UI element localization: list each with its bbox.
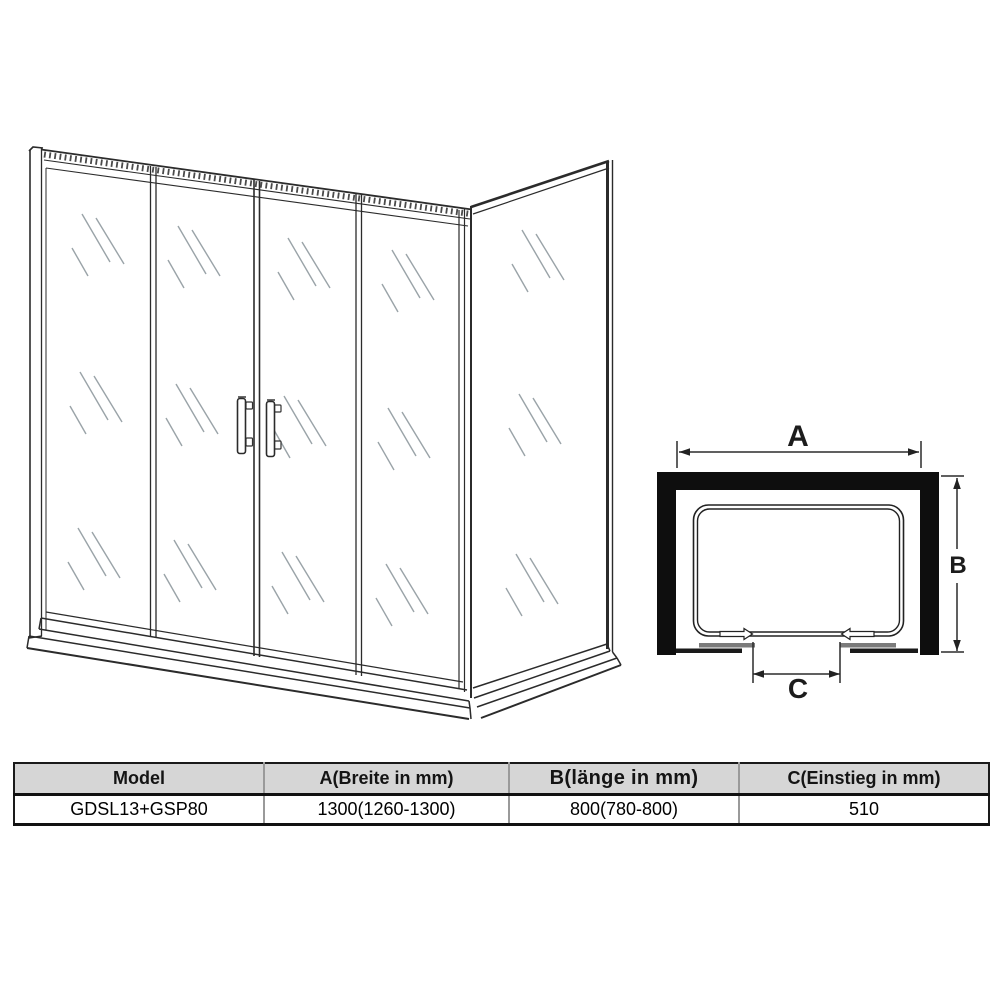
dimension-c: C	[753, 642, 840, 704]
enclosure-perspective-drawing	[27, 147, 621, 719]
spec-table-header-row: Model A(Breite in mm) B(länge in mm) C(E…	[14, 763, 989, 795]
dimension-b: B	[941, 476, 967, 652]
dimension-b-label: B	[949, 552, 966, 579]
shower-enclosure-drawings: A B C	[0, 0, 1001, 760]
col-header-width: A(Breite in mm)	[264, 763, 509, 795]
cell-length: 800(780-800)	[509, 795, 739, 825]
bottom-rail-and-tray	[27, 612, 471, 719]
glass-panel-dividers	[151, 166, 362, 676]
cell-width: 1300(1260-1300)	[264, 795, 509, 825]
door-handle-left	[238, 397, 253, 454]
sliding-direction-arrows	[720, 629, 874, 640]
spec-table-data-row: GDSL13+GSP80 1300(1260-1300) 800(780-800…	[14, 795, 989, 825]
topview-tray-outline	[694, 505, 904, 636]
dimension-a: A	[677, 420, 921, 468]
wall-profile	[29, 147, 43, 638]
col-header-length: B(länge in mm)	[509, 763, 739, 795]
door-track-bars	[676, 643, 918, 653]
glass-reflection-marks	[68, 214, 564, 626]
col-header-model: Model	[14, 763, 264, 795]
dimension-a-label: A	[787, 420, 809, 453]
spec-table: Model A(Breite in mm) B(länge in mm) C(E…	[13, 762, 990, 826]
top-rail-hatch	[44, 155, 471, 215]
topview-dimension-diagram: A B C	[657, 420, 967, 704]
cell-entry: 510	[739, 795, 989, 825]
cell-model: GDSL13+GSP80	[14, 795, 264, 825]
top-rail	[41, 150, 472, 631]
product-dimension-sheet: A B C	[0, 0, 1001, 1001]
col-header-entry: C(Einstieg in mm)	[739, 763, 989, 795]
door-handle-right	[267, 400, 282, 457]
corner-post	[459, 206, 471, 698]
dimension-c-label: C	[788, 673, 808, 704]
